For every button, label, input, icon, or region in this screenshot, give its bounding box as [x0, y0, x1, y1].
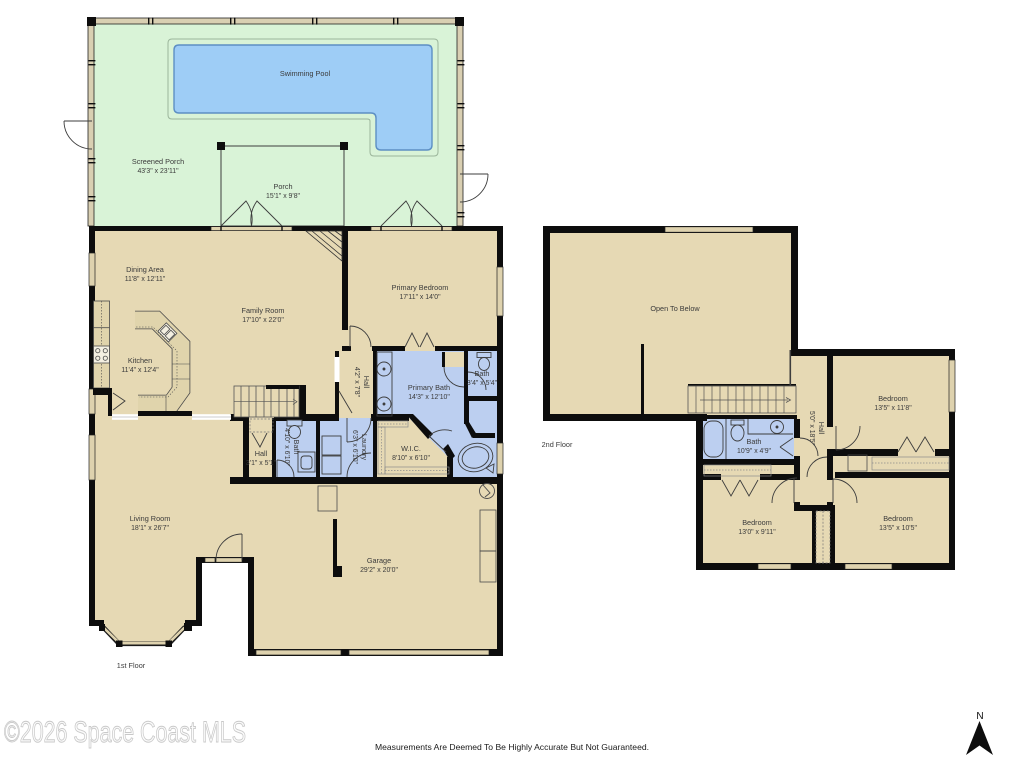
svg-text:3'1" x 5'1": 3'1" x 5'1" — [246, 460, 277, 467]
svg-text:Laundry: Laundry — [360, 434, 369, 461]
svg-text:4'2" x 7'8": 4'2" x 7'8" — [353, 367, 360, 398]
svg-text:29'2" x 20'0": 29'2" x 20'0" — [360, 567, 398, 574]
svg-text:Porch: Porch — [273, 182, 292, 191]
svg-text:4'10" x 6'10": 4'10" x 6'10" — [283, 428, 290, 466]
svg-text:13'5" x 10'5": 13'5" x 10'5" — [879, 525, 917, 532]
svg-text:14'3" x 12'10": 14'3" x 12'10" — [408, 394, 450, 401]
svg-text:W.I.C.: W.I.C. — [401, 444, 421, 453]
svg-text:Hall: Hall — [255, 449, 268, 458]
svg-text:Bedroom: Bedroom — [742, 518, 772, 527]
svg-text:Screened Porch: Screened Porch — [132, 157, 184, 166]
svg-text:N: N — [976, 711, 983, 722]
svg-text:Bath: Bath — [474, 369, 489, 378]
svg-text:3'4" x 5'4": 3'4" x 5'4" — [467, 380, 498, 387]
svg-text:Open To Below: Open To Below — [650, 304, 700, 313]
svg-text:15'1" x 9'8": 15'1" x 9'8" — [266, 193, 301, 200]
svg-text:13'0" x 9'11": 13'0" x 9'11" — [738, 529, 776, 536]
svg-text:Bedroom: Bedroom — [878, 394, 908, 403]
svg-text:Hall: Hall — [817, 422, 826, 435]
svg-text:18'1" x 26'7": 18'1" x 26'7" — [131, 525, 169, 532]
svg-text:©2026 Space Coast MLS: ©2026 Space Coast MLS — [4, 716, 246, 749]
svg-text:11'8" x 12'11": 11'8" x 12'11" — [125, 276, 166, 283]
svg-text:43'3" x 23'11": 43'3" x 23'11" — [137, 168, 179, 175]
svg-text:Swimming Pool: Swimming Pool — [280, 69, 331, 78]
svg-text:Bath: Bath — [746, 437, 761, 446]
svg-text:13'5" x 11'8": 13'5" x 11'8" — [874, 405, 912, 412]
svg-text:17'11" x 14'0": 17'11" x 14'0" — [399, 294, 441, 301]
svg-text:2nd Floor: 2nd Floor — [542, 440, 573, 449]
svg-text:Primary Bedroom: Primary Bedroom — [392, 283, 449, 292]
svg-text:6'3" x 6'10": 6'3" x 6'10" — [351, 430, 358, 465]
svg-text:Kitchen: Kitchen — [128, 356, 152, 365]
svg-text:Primary Bath: Primary Bath — [408, 383, 450, 392]
svg-text:10'9" x 4'9": 10'9" x 4'9" — [737, 448, 772, 455]
svg-text:1st Floor: 1st Floor — [117, 661, 146, 670]
svg-text:Bath: Bath — [292, 439, 301, 454]
svg-text:8'10" x 6'10": 8'10" x 6'10" — [392, 455, 430, 462]
svg-text:Family Room: Family Room — [242, 306, 285, 315]
svg-text:Measurements Are Deemed To Be: Measurements Are Deemed To Be Highly Acc… — [375, 743, 649, 752]
svg-text:Bedroom: Bedroom — [883, 514, 913, 523]
svg-text:11'4" x 12'4": 11'4" x 12'4" — [121, 367, 159, 374]
svg-text:5'0" x 18'5": 5'0" x 18'5" — [808, 411, 815, 446]
svg-text:17'10" x 22'0": 17'10" x 22'0" — [242, 317, 284, 324]
svg-text:Living Room: Living Room — [130, 514, 171, 523]
svg-text:Garage: Garage — [367, 556, 391, 565]
svg-text:Hall: Hall — [362, 376, 371, 389]
svg-text:Dining Area: Dining Area — [126, 265, 165, 274]
